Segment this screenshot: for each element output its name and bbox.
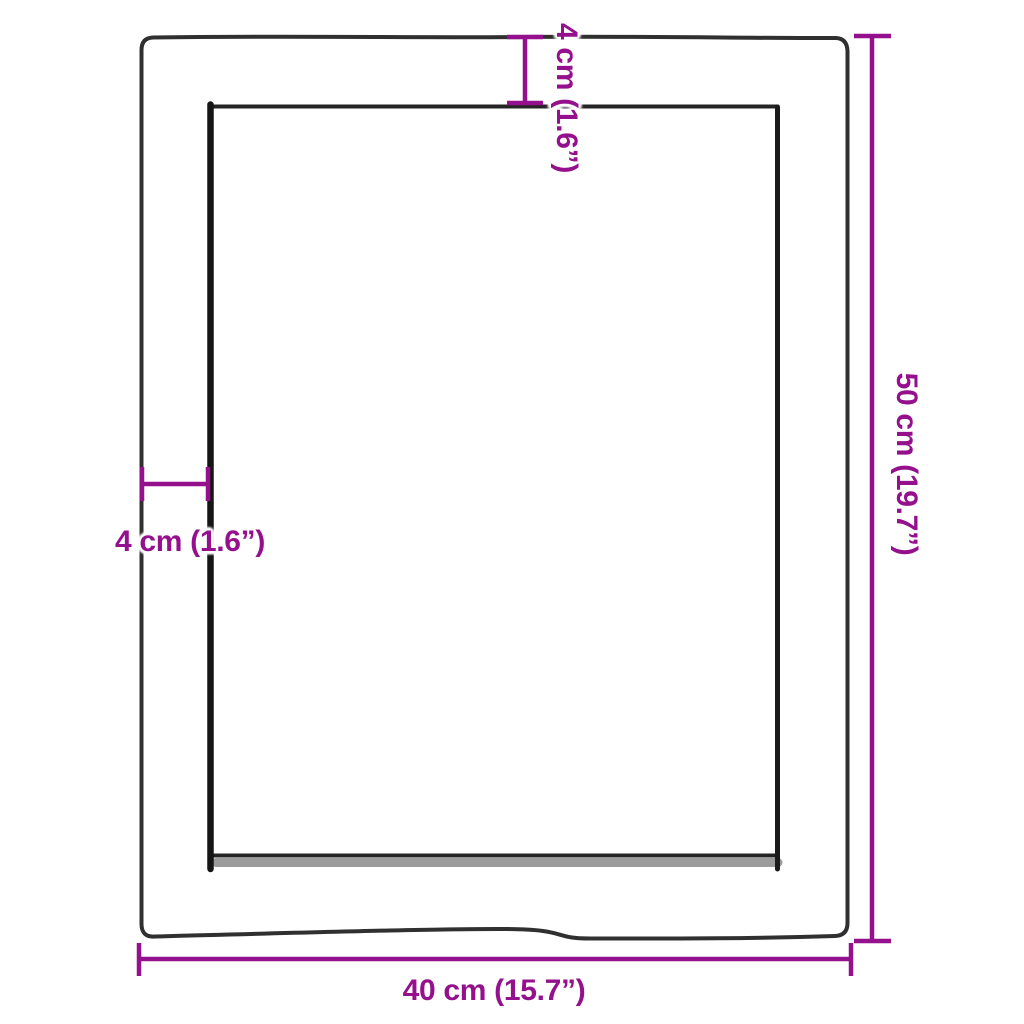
panel-inner-face bbox=[211, 107, 778, 856]
panel-outline-group bbox=[142, 37, 848, 939]
width-label: 40 cm (15.7”) bbox=[403, 974, 586, 1008]
height-label: 50 cm (19.7”) bbox=[889, 373, 923, 556]
panel-outer-edge bbox=[142, 37, 848, 939]
product-dimension-diagram: 4 cm (1.6”) 4 cm (1.6”) 50 cm (19.7”) 40… bbox=[0, 0, 1024, 1024]
panel-drawing bbox=[0, 0, 1024, 1024]
thickness-side-label: 4 cm (1.6”) bbox=[115, 525, 265, 559]
thickness-top-label: 4 cm (1.6”) bbox=[549, 23, 583, 173]
